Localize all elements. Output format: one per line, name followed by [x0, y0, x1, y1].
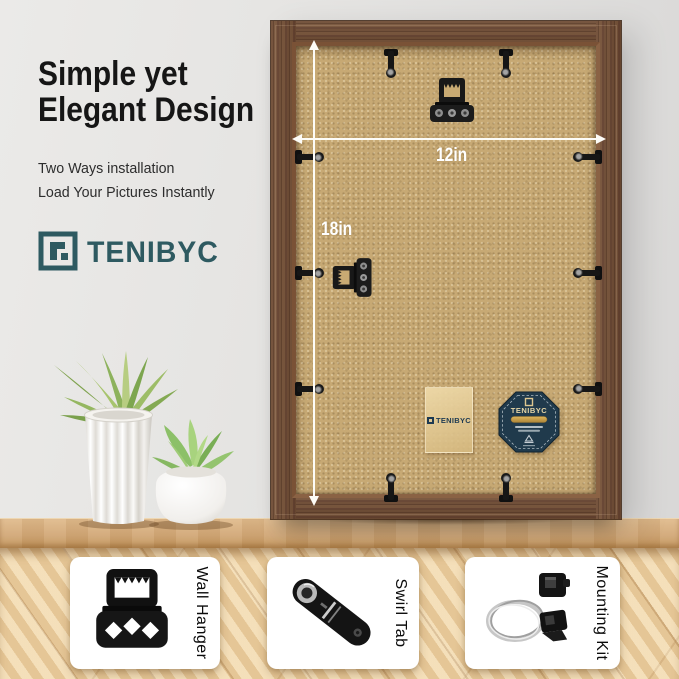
swirl-tab-icon — [384, 49, 398, 79]
brand-wordmark: TENIBYC — [87, 236, 219, 270]
swirl-tab-icon — [572, 266, 602, 280]
product-image: Simple yet Elegant Design Two Ways insta… — [0, 0, 679, 679]
swirl-tab-icon — [279, 567, 383, 659]
subheadline-line2: Load Your Pictures Instantly — [38, 181, 271, 205]
dimension-height-line — [313, 49, 315, 497]
eco-badge: TENIBYC — [498, 391, 560, 453]
dimension-width-label: 12in — [427, 145, 476, 167]
badge-wordmark: TENIBYC — [511, 406, 548, 415]
feature-card-swirl-tab: Swirl Tab — [267, 557, 419, 669]
headline-line2: Elegant Design — [38, 92, 254, 128]
feature-card-mounting-kit: Mounting Kit — [465, 557, 620, 669]
headline: Simple yet Elegant Design — [38, 56, 254, 129]
picture-frame-back: TENIBYC TENIBYC — [270, 20, 622, 520]
subheadline: Two Ways installation Load Your Pictures… — [38, 157, 271, 205]
pot-round — [156, 467, 226, 525]
feature-label: Mounting Kit — [592, 566, 610, 661]
potted-plants — [40, 345, 250, 530]
feature-label: Swirl Tab — [391, 578, 409, 647]
headline-line1: Simple yet — [38, 56, 254, 92]
brand-frame-icon — [427, 417, 434, 424]
sticker-wordmark: TENIBYC — [436, 416, 471, 425]
swirl-tab-icon — [295, 382, 325, 396]
sawtooth-hanger-icon — [82, 567, 182, 659]
mounting-clip-icon — [539, 609, 569, 642]
dimension-width-line — [301, 138, 597, 140]
subheadline-line1: Two Ways installation — [38, 157, 271, 181]
dimension-height-label: 18in — [321, 219, 352, 241]
sawtooth-hanger-icon — [426, 77, 478, 134]
brand-sticker: TENIBYC — [425, 387, 473, 453]
brand-frame-icon — [38, 231, 78, 276]
mounting-clip-icon — [539, 573, 570, 597]
swirl-tab-icon — [572, 382, 602, 396]
swirl-tab-icon — [572, 150, 602, 164]
brand-logo: TENIBYC — [38, 231, 284, 276]
marketing-copy: Simple yet Elegant Design Two Ways insta… — [38, 56, 284, 276]
sawtooth-hanger-side-icon — [332, 255, 382, 301]
swirl-tab-icon — [499, 472, 513, 502]
mounting-kit-icon — [477, 567, 585, 659]
swirl-tab-icon — [499, 49, 513, 79]
feature-label: Wall Hanger — [192, 567, 210, 660]
feature-card-wall-hanger: Wall Hanger — [70, 557, 220, 669]
swirl-tab-icon — [384, 472, 398, 502]
pot-tall-fluted — [85, 408, 153, 524]
swirl-tab-icon — [295, 150, 325, 164]
swirl-tab-icon — [295, 266, 325, 280]
